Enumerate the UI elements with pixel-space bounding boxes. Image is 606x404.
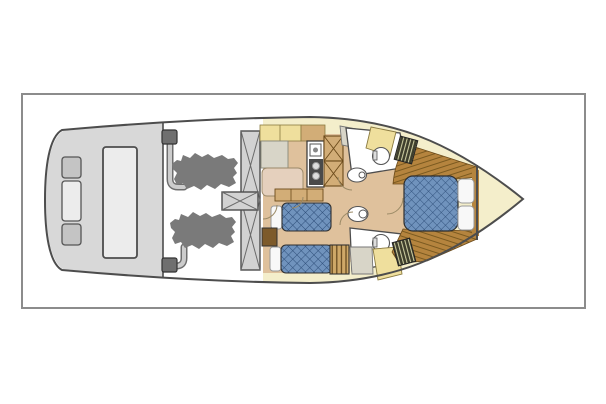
exhaust-outlet-bottom [162,258,177,272]
toilet-top-icon [348,168,367,182]
sink-bottom-faucet [373,238,377,247]
exhaust-outlet-top [162,130,177,144]
companionway-steps [330,245,349,274]
galley-worktop [261,141,288,168]
nightstand [262,228,277,246]
galley-counter-yellow [260,125,301,141]
guest-berth-top-mattress [282,203,331,231]
transom-seat-bottom [62,224,81,245]
galley-faucet-icon [313,148,318,153]
guest-berth-bottom-pillow [270,247,281,271]
toilet-mid-icon [348,207,368,222]
guest-wardrobe [275,189,323,201]
stove-burner-icon-1 [313,163,320,170]
master-pillow-top [458,179,474,203]
galley-counter-tan [301,125,325,141]
master-pillow-bottom [458,206,474,230]
guest-berth-bottom-mattress [281,245,332,273]
master-bed-mattress [404,176,458,231]
sink-top-faucet [373,151,377,160]
cockpit-hatch-table [103,147,137,258]
transom-seat-middle [62,181,81,221]
cockpit-deck-group [46,123,163,277]
floorplan-svg [0,0,606,404]
yacht-floorplan-figure [0,0,606,404]
shower-bottom [350,247,373,274]
transom-seat-top [62,157,81,178]
stove-burner-icon-2 [313,173,320,180]
